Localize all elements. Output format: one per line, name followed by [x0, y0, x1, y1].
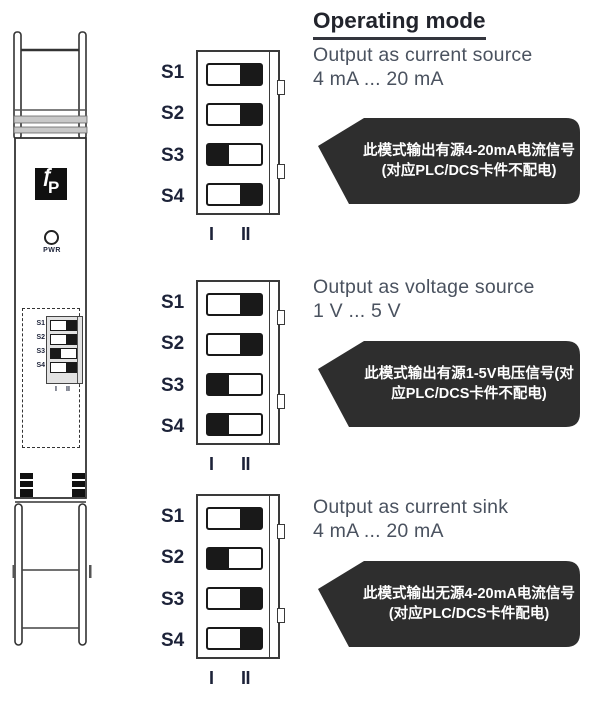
- dip-switch-s3: [206, 373, 263, 396]
- position-marker-II: II: [241, 224, 250, 245]
- housing-tab: [277, 394, 285, 409]
- pwr-label: PWR: [38, 247, 66, 254]
- device-position-marker-I: I: [55, 386, 57, 393]
- dip-block-current-sink: S1 S2 S3 S4 I II: [161, 494, 301, 690]
- dip-label-s3: S3: [161, 374, 196, 397]
- dip-switch-s2: [206, 333, 263, 356]
- housing-tab: [277, 80, 285, 95]
- switch-knob: [240, 65, 261, 84]
- housing-tab: [277, 524, 285, 539]
- dip-switch-s4: [206, 183, 263, 206]
- housing-tab: [277, 310, 285, 325]
- device-dip-switch-s2: [50, 334, 77, 345]
- device-dip-label: S4: [31, 360, 45, 371]
- dip-switch-s2: [206, 103, 263, 126]
- device-dip-switch-s1: [50, 320, 77, 331]
- dip-label-s3: S3: [161, 144, 196, 167]
- housing-tab: [277, 608, 285, 623]
- switch-knob: [208, 415, 229, 434]
- mode-title-line1: Output as current sink: [313, 496, 508, 520]
- dip-block-voltage-source: S1 S2 S3 S4 I II: [161, 280, 301, 476]
- dip-switch-s1: [206, 63, 263, 86]
- device-dip-switch-s4: [50, 362, 77, 373]
- device-position-marker-II: II: [66, 386, 70, 393]
- dip-housing: [196, 494, 280, 659]
- dip-label-s3: S3: [161, 588, 196, 611]
- position-marker-I: I: [209, 224, 214, 245]
- dip-label-s1: S1: [161, 61, 196, 84]
- switch-knob: [66, 335, 76, 344]
- dip-housing: [196, 280, 280, 445]
- dip-label-s2: S2: [161, 102, 196, 125]
- device-dip-housing: [46, 316, 83, 384]
- dip-label-s2: S2: [161, 546, 196, 569]
- dip-label-s4: S4: [161, 415, 196, 438]
- switch-knob: [208, 145, 229, 164]
- position-marker-I: I: [209, 454, 214, 475]
- mode-title-current-source: Output as current source 4 mA ... 20 mA: [313, 44, 532, 91]
- dip-housing: [196, 50, 280, 215]
- mode-title-line2: 1 V ... 5 V: [313, 300, 535, 324]
- dip-label-s2: S2: [161, 332, 196, 355]
- switch-knob: [240, 589, 261, 608]
- switch-knob: [240, 295, 261, 314]
- device-dip-label: S2: [31, 332, 45, 343]
- switch-knob: [51, 349, 61, 358]
- mode-title-line1: Output as voltage source: [313, 276, 535, 300]
- position-marker-II: II: [241, 668, 250, 689]
- dip-label-s1: S1: [161, 505, 196, 528]
- switch-knob: [240, 335, 261, 354]
- switch-knob: [240, 105, 261, 124]
- switch-knob: [66, 321, 76, 330]
- dip-switch-s2: [206, 547, 263, 570]
- dip-label-s4: S4: [161, 185, 196, 208]
- page-title: Operating mode: [313, 8, 486, 40]
- callout-current-source: 此模式输出有源4-20mA电流信号(对应PLC/DCS卡件不配电): [316, 116, 584, 206]
- device-dip-label: S1: [31, 318, 45, 329]
- mode-title-voltage-source: Output as voltage source 1 V ... 5 V: [313, 276, 535, 323]
- pwr-led-indicator: [44, 230, 59, 245]
- dip-switch-s3: [206, 587, 263, 610]
- pepperl-fuchs-logo-icon: ƒ P: [35, 168, 67, 200]
- manual-figure-operating-mode: ƒ P PWR S1 S2 S3 S4 I II S1 S2 S3 S4: [0, 0, 615, 707]
- switch-knob: [208, 549, 229, 568]
- mode-title-line1: Output as current source: [313, 44, 532, 68]
- callout-text: 此模式输出无源4-20mA电流信号(对应PLC/DCS卡件配电): [362, 563, 576, 645]
- dip-switch-s3: [206, 143, 263, 166]
- switch-knob: [208, 375, 229, 394]
- mode-title-line2: 4 mA ... 20 mA: [313, 520, 508, 544]
- position-marker-I: I: [209, 668, 214, 689]
- dip-label-s1: S1: [161, 291, 196, 314]
- switch-knob: [240, 185, 261, 204]
- device-dip-label: S3: [31, 346, 45, 357]
- switch-knob: [66, 363, 76, 372]
- switch-knob: [240, 509, 261, 528]
- callout-voltage-source: 此模式输出有源1-5V电压信号(对应PLC/DCS卡件不配电): [316, 339, 584, 429]
- dip-switch-s1: [206, 293, 263, 316]
- dip-switch-s4: [206, 627, 263, 650]
- dip-switch-s4: [206, 413, 263, 436]
- dip-label-s4: S4: [161, 629, 196, 652]
- device-dip-switch-s3: [50, 348, 77, 359]
- logo-glyph: P: [48, 178, 59, 198]
- callout-text: 此模式输出有源1-5V电压信号(对应PLC/DCS卡件不配电): [362, 343, 576, 425]
- callout-current-sink: 此模式输出无源4-20mA电流信号(对应PLC/DCS卡件配电): [316, 559, 584, 649]
- callout-text: 此模式输出有源4-20mA电流信号(对应PLC/DCS卡件不配电): [362, 120, 576, 202]
- dip-switch-s1: [206, 507, 263, 530]
- mode-title-current-sink: Output as current sink 4 mA ... 20 mA: [313, 496, 508, 543]
- switch-knob: [240, 629, 261, 648]
- position-marker-II: II: [241, 454, 250, 475]
- dip-block-current-source: S1 S2 S3 S4 I II: [161, 50, 301, 246]
- housing-tab: [277, 164, 285, 179]
- mode-title-line2: 4 mA ... 20 mA: [313, 68, 532, 92]
